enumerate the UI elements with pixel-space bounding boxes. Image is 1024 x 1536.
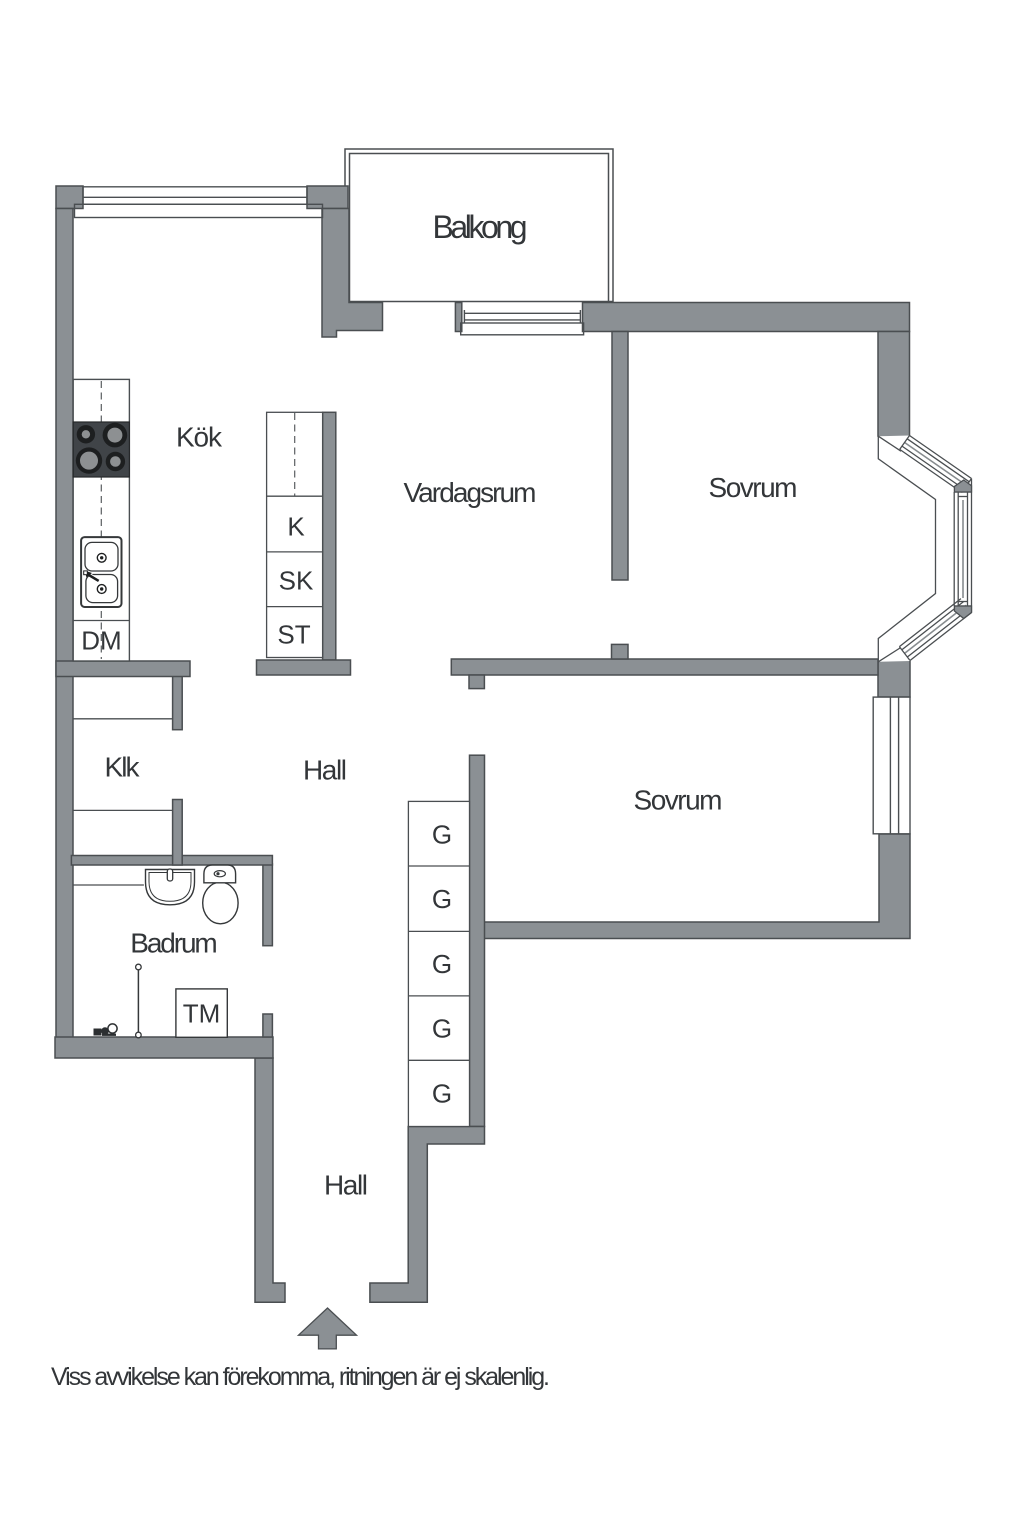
svg-text:Klk: Klk — [105, 752, 141, 783]
svg-text:DM: DM — [81, 626, 121, 656]
svg-text:G: G — [432, 1014, 452, 1044]
svg-text:Balkong: Balkong — [433, 209, 528, 245]
svg-text:Badrum: Badrum — [130, 928, 218, 959]
svg-text:G: G — [432, 820, 452, 850]
svg-text:G: G — [432, 884, 452, 914]
svg-text:Hall: Hall — [324, 1170, 368, 1201]
svg-text:Hall: Hall — [303, 755, 347, 786]
svg-text:Viss avvikelse kan förekomma,: Viss avvikelse kan förekomma, ritningen … — [51, 1363, 550, 1391]
svg-text:TM: TM — [183, 999, 221, 1029]
svg-text:Kök: Kök — [176, 422, 223, 453]
svg-text:SK: SK — [279, 566, 314, 596]
svg-text:Sovrum: Sovrum — [709, 472, 798, 503]
svg-text:Sovrum: Sovrum — [634, 785, 723, 816]
svg-text:K: K — [287, 512, 305, 542]
svg-text:Vardagsrum: Vardagsrum — [404, 477, 537, 508]
svg-text:ST: ST — [277, 620, 310, 650]
svg-text:G: G — [432, 949, 452, 979]
svg-text:G: G — [432, 1079, 452, 1109]
